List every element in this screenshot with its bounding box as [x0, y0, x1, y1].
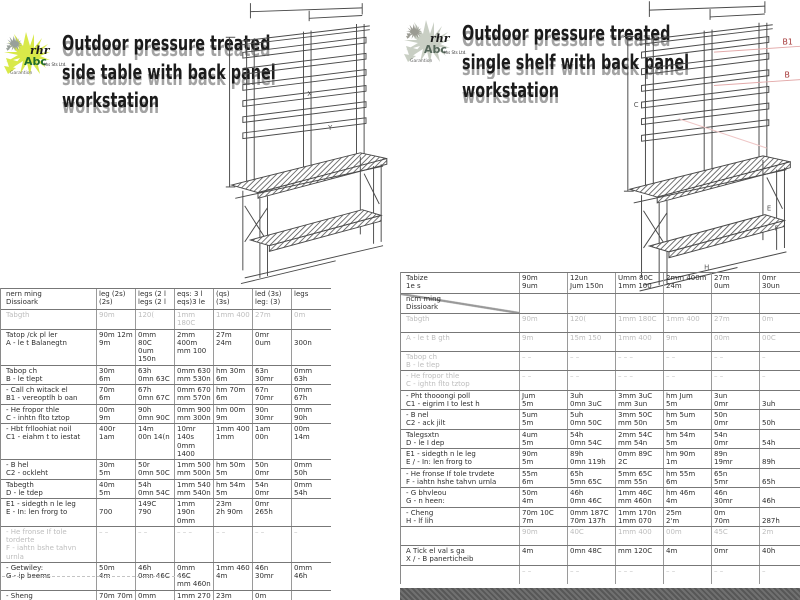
table-row: Tabop ch B - le tlept30m 6m63h 0mn 63C0m… — [1, 365, 331, 385]
dim-label: C — [634, 101, 639, 109]
table-cell: – – — [567, 371, 615, 390]
table-row: Talegsxtn D - le I dep4um 5m54h 0mn 54C2… — [401, 429, 800, 449]
table-cell: 2m — [759, 527, 800, 545]
table-cell: 65h 5mn 65C — [567, 469, 615, 488]
table-cell: 1mm 170n 1mm 070 — [615, 508, 663, 527]
table-cell: 14m 00n 14(n — [135, 424, 174, 459]
title-line: workstation — [462, 76, 620, 104]
table-cell: 54n 0mr — [252, 480, 291, 499]
table-cell: 23m 2'm 70m — [213, 591, 252, 600]
table-cell: 46h 0mn 46C — [567, 488, 615, 507]
table-cell: 0mm 80C 0um 150n — [135, 330, 174, 365]
table-cell: - B nel C2 - ack jilt — [401, 410, 519, 429]
table-cell: Tabgth — [1, 310, 96, 329]
table-cell: 90m — [519, 527, 567, 545]
table-cell: 4m — [519, 546, 567, 565]
table-cell: – – — [663, 352, 711, 371]
table-cell: hm 54m 5m — [213, 480, 252, 499]
table-row: E1 - sidegth n le leg E / - In: len fror… — [401, 448, 800, 468]
table-cell: – — [759, 371, 800, 390]
table-cell: 1mm 460 4m — [213, 563, 252, 590]
table-cell: 700 — [96, 499, 135, 526]
table-row: Tatop /ck pl ler A - le t Balanegtn90m 1… — [1, 329, 331, 365]
dim-label: F — [775, 224, 779, 232]
table-cell: 3mm 50C mm 50n — [615, 410, 663, 429]
table-cell: 63h 0mn 63C — [135, 366, 174, 385]
table-row: A - le t B gth9m15m 1501mm 4009m00m00C — [401, 332, 800, 351]
table-cell: 40h — [759, 546, 800, 565]
table-cell: 1mm 400 1mm — [213, 424, 252, 459]
table-row: nern ming Dissioarkleg (2s) (2s)legs (2 … — [1, 288, 331, 309]
table-cell: 65n 5mr — [711, 469, 759, 488]
table-cell: 00m 9m — [96, 405, 135, 424]
table-row: 90m40C1mm 40000m45C2m — [401, 526, 800, 545]
table-cell: 30m 6m — [96, 366, 135, 385]
page-right: rhr Abc ths Sts Ltd. Garantion Outdoor p… — [400, 0, 800, 600]
table-cell: ncm ming Dissioark — [401, 294, 519, 313]
table-cell: 50n 0mr — [711, 410, 759, 429]
brand-tagline: Garantion — [10, 71, 32, 76]
table-cell: 0mm 46h — [291, 563, 330, 590]
page-left: rhr Abc ths Sts Ltd. Garantion Outdoor p… — [0, 0, 400, 600]
table-cell: 70m 70m 7m — [96, 591, 135, 600]
table-cell: 67n 70mr — [252, 385, 291, 404]
table-row: - Call ch witack el B1 - vereoptlh b oan… — [1, 384, 331, 404]
table-cell: – – — [711, 371, 759, 390]
table-cell: 10mr 140s 0mm 1400 — [174, 424, 213, 459]
table-cell: 90m 9um — [519, 273, 567, 293]
table-cell: Tabize 1e s — [401, 273, 519, 293]
table-cell: 25m 2'm — [663, 508, 711, 527]
table-row: - Cheng H - lf lih70m 10C 7m0mm 187C 70m… — [401, 507, 800, 527]
table-row: - He fropor thle C - inhtn flto tztop00m… — [1, 404, 331, 424]
table-cell: 3uh — [759, 391, 800, 410]
table-cell: 2mm 54C mm 54n — [615, 430, 663, 449]
table-cell: 30m 5m — [96, 460, 135, 479]
table-cell: – – – — [615, 566, 663, 584]
table-cell: 0mm 670 mm 570n — [174, 385, 213, 404]
table-cell: 1mm 46C mm 460n — [615, 488, 663, 507]
table-cell: 4um 5m — [519, 430, 567, 449]
table-cell: – – — [135, 527, 174, 562]
title-line: Outdoor pressure treated — [462, 19, 620, 47]
table-cell: 120( — [135, 310, 174, 329]
table-cell: nern ming Dissioark — [1, 289, 96, 309]
table-row: - He fronse If tole trvdete F - iahtn hs… — [401, 468, 800, 488]
table-cell: 45C — [711, 527, 759, 545]
table-cell: Umm 80C 1mm 100 — [615, 273, 663, 293]
table-cell: E1 - sidegth n le leg E / - In: len fror… — [401, 449, 519, 468]
table-cell: 120( — [567, 314, 615, 332]
table-row: - He fropor thle C - ightn flto tztop– –… — [401, 370, 800, 390]
table-cell: E1 - sidegth n le leg E - In: len frorg … — [1, 499, 96, 526]
brand-tagline: Garantion — [410, 59, 432, 64]
table-cell — [711, 294, 759, 313]
table-cell: 0mm 630 mm 530n — [174, 366, 213, 385]
table-cell: 1mm 400 — [663, 314, 711, 332]
table-cell: - He fronse If tole torderte F - iahtn b… — [1, 527, 96, 562]
table-cell: 46n 30mr — [252, 563, 291, 590]
table-cell: 9m — [663, 333, 711, 351]
table-cell: 50r 0mn 50C — [135, 460, 174, 479]
table-cell — [663, 294, 711, 313]
table-cell: Jum 5m — [519, 391, 567, 410]
title-line: workstation — [62, 86, 220, 114]
table-row: Tabgth90m120(1mm 180C1mm 40027m0m — [1, 309, 331, 329]
table-cell: – – — [519, 566, 567, 584]
table-cell: 90h 0mn 90C — [135, 405, 174, 424]
table-cell: 0mr 265h — [252, 499, 291, 526]
table-cell: – — [291, 527, 330, 562]
table-cell: 0mm 87C 0m 137h — [135, 591, 174, 600]
table-cell: 12un Jum 150n — [567, 273, 615, 293]
dim-label: E — [767, 205, 771, 213]
table-cell: - He fropor thle C - ightn flto tztop — [401, 371, 519, 390]
table-cell: 46h — [759, 488, 800, 507]
table-cell: 0mm 90h — [291, 405, 330, 424]
table-row: - Sheng H - eil iun70m 70m 7m0mm 87C 0m … — [1, 590, 331, 600]
table-cell: 50h — [759, 410, 800, 429]
table-cell: – – — [519, 371, 567, 390]
table-cell: 70m 6m — [96, 385, 135, 404]
table-cell: - Pht thooongi poll C1 - eigrim I to les… — [401, 391, 519, 410]
bench-drawing: B1 B C E F H — [620, 0, 800, 306]
table-cell: A - le t B gth — [401, 333, 519, 351]
table-cell: 0mm 50h — [291, 460, 330, 479]
table-cell: – – — [663, 371, 711, 390]
table-cell: 0mr 0um — [252, 330, 291, 365]
table-row: A Tick el val s ga X / - B panerticheib4… — [401, 545, 800, 565]
table-cell: 1mm 400 — [615, 333, 663, 351]
table-cell: – – – — [174, 527, 213, 562]
table-cell: 0mr 30un — [759, 273, 800, 293]
table-cell: 1am 00n — [252, 424, 291, 459]
table-cell: – — [759, 352, 800, 371]
table-cell: 50m 4m — [519, 488, 567, 507]
table-cell: 54h — [759, 430, 800, 449]
table-cell: 9m — [519, 333, 567, 351]
table-cell: 3uh 0mn 3uC — [567, 391, 615, 410]
table-bottom-rule — [2, 576, 190, 577]
table-cell: – – — [711, 352, 759, 371]
table-row: - Pht thooongi poll C1 - eigrim I to les… — [401, 390, 800, 410]
table-cell: 00m — [711, 333, 759, 351]
table-cell: 3un 0mr — [711, 391, 759, 410]
table-cell: 90m 12m 9m — [96, 330, 135, 365]
table-cell: 27m — [252, 310, 291, 329]
dimensions-table: nern ming Dissioarkleg (2s) (2s)legs (2 … — [0, 288, 331, 600]
table-cell: hm 90m 1m — [663, 449, 711, 468]
table-cell: 5uh 0mn 50C — [567, 410, 615, 429]
title-line: single shelf with back panel — [462, 48, 620, 76]
table-cell — [519, 294, 567, 313]
table-row: Tabegth D - le tdep40m 5m54h 0mn 54C1mm … — [1, 479, 331, 499]
table-cell: - Hbt frlloohiat noil C1 - eiahm t to ie… — [1, 424, 96, 459]
table-cell — [291, 591, 330, 600]
table-cell: 40m 5m — [96, 480, 135, 499]
table-cell: (qs) (3s) — [213, 289, 252, 309]
table-cell: 1mm 180C — [615, 314, 663, 332]
table-cell: – – — [711, 566, 759, 584]
table-cell: – – – — [615, 371, 663, 390]
table-cell: 00m — [663, 527, 711, 545]
table-cell: hm 00m 9m — [213, 405, 252, 424]
table-cell: – – — [252, 527, 291, 562]
table-cell: 15m 150 — [567, 333, 615, 351]
title-line: Outdoor pressure treated — [62, 29, 220, 57]
table-cell: - G bhvleou G - n heen: — [401, 488, 519, 507]
table-cell: 27m — [711, 314, 759, 332]
table-row: ncm ming Dissioark — [401, 293, 800, 313]
table-row: Tabgth90m120(1mm 180C1mm 40027m0m — [401, 313, 800, 332]
table-cell: 46n 30mr — [711, 488, 759, 507]
table-cell: – – — [519, 352, 567, 371]
table-cell: - B hel C2 - ockleht — [1, 460, 96, 479]
table-cell: 54h 0mn 54C — [135, 480, 174, 499]
table-cell: 0m — [759, 314, 800, 332]
table-cell — [401, 527, 519, 545]
table-cell: 27m 24m — [213, 330, 252, 365]
table-cell: legs (2 l legs (2 l — [135, 289, 174, 309]
table-cell: 0mm 54h — [291, 480, 330, 499]
table-cell: 40C — [567, 527, 615, 545]
table-cell: 1mm 500 mm 500n — [174, 460, 213, 479]
table-cell: 89h 0mn 119h — [567, 449, 615, 468]
table-cell: – – — [567, 352, 615, 371]
table-cell: mm 120C — [615, 546, 663, 565]
table-cell: 54h 0mn 54C — [567, 430, 615, 449]
table-cell: 0m — [291, 310, 330, 329]
table-cell: 00C — [759, 333, 800, 351]
table-cell: – – — [213, 527, 252, 562]
table-cell: Tabgth — [401, 314, 519, 332]
table-row: - B hel C2 - ockleht30m 5m50r 0mn 50C1mm… — [1, 459, 331, 479]
table-cell: 0mm 900 mm 300n — [174, 405, 213, 424]
dim-label: X — [307, 90, 312, 98]
table-cell: 0mr — [711, 546, 759, 565]
table-cell: - Sheng H - eil iun — [1, 591, 96, 600]
table-cell: 55m 6m — [519, 469, 567, 488]
table-cell: 5um 5m — [519, 410, 567, 429]
table-cell: legs — [291, 289, 330, 309]
dim-label-b: B — [784, 71, 789, 80]
table-cell: 27m 0um — [711, 273, 759, 293]
table-cell: A Tick el val s ga X / - B panerticheib — [401, 546, 519, 565]
table-cell — [615, 294, 663, 313]
table-cell: hm 30m 6m — [213, 366, 252, 385]
table-cell: 149C 790 — [135, 499, 174, 526]
table-cell: - He fropor thle C - inhtn flto tztop — [1, 405, 96, 424]
table-cell: – – — [96, 527, 135, 562]
table-row: E1 - sidegth n le leg E - In: len frorg … — [1, 498, 331, 526]
table-cell: 300n — [291, 330, 330, 365]
table-cell: 23m 2h 90m — [213, 499, 252, 526]
table-row: - He fronse If tole torderte F - iahtn b… — [1, 526, 331, 562]
table-cell: 00m 14m — [291, 424, 330, 459]
table-cell: – – — [663, 566, 711, 584]
table-row: Tabize 1e s90m 9um12un Jum 150nUmm 80C 1… — [401, 272, 800, 293]
table-cell: 287h — [759, 508, 800, 527]
table-row: - B nel C2 - ack jilt5um 5m5uh 0mn 50C3m… — [401, 409, 800, 429]
table-cell: hm 54m 5m — [663, 430, 711, 449]
table-cell: 54n 0mr — [711, 430, 759, 449]
table-cell: 67h 0mn 67C — [135, 385, 174, 404]
table-cell: 0m 70m — [711, 508, 759, 527]
table-cell — [291, 499, 330, 526]
table-cell: 5mm 65C mm 55n — [615, 469, 663, 488]
table-cell: – – – — [615, 352, 663, 371]
table-cell — [759, 294, 800, 313]
table-cell: hm 70m 6m — [213, 385, 252, 404]
table-cell: 400r 1am — [96, 424, 135, 459]
bottom-dark-strip — [400, 588, 800, 600]
table-cell: hm 46m 4m — [663, 488, 711, 507]
table-cell: hm 5um 5m — [663, 410, 711, 429]
table-cell: 1mm 180C — [174, 310, 213, 329]
table-cell — [401, 566, 519, 584]
table-cell: 90m 5m — [519, 449, 567, 468]
table-row: - Hbt frlloohiat noil C1 - eiahm t to ie… — [1, 423, 331, 459]
table-cell: Tatop /ck pl ler A - le t Balanegtn — [1, 330, 96, 365]
table-cell: - Cheng H - lf lih — [401, 508, 519, 527]
table-cell: 65h — [759, 469, 800, 488]
table-cell: Tabegth D - le tdep — [1, 480, 96, 499]
table-row: - G bhvleou G - n heen:50m 4m46h 0mn 46C… — [401, 487, 800, 507]
table-cell: Tabop ch B - le tlep — [401, 352, 519, 371]
table-cell: 1mm 400 — [213, 310, 252, 329]
dim-label: H — [704, 263, 709, 271]
table-cell: 1mm 400 — [615, 527, 663, 545]
table-cell: Tabop ch B - le tlept — [1, 366, 96, 385]
dim-label-b1: B1 — [783, 37, 793, 46]
table-cell: 0mm 187C 70m 137h — [567, 508, 615, 527]
table-cell: - He fronse If tole trvdete F - iahtn hs… — [401, 469, 519, 488]
table-cell — [567, 294, 615, 313]
table-cell: hm 55m 6m — [663, 469, 711, 488]
table-cell: eqs: 3 l eqs)3 le — [174, 289, 213, 309]
table-cell: 63n 30mr — [252, 366, 291, 385]
table-row: Tabop ch B - le tlep– –– –– – –– –– –– — [401, 351, 800, 371]
table-cell: 1mm 190n 0mm — [174, 499, 213, 526]
table-cell: 89n 19mr — [711, 449, 759, 468]
table-cell: 89h — [759, 449, 800, 468]
table-row: – –– –– – –– –– –– — [401, 565, 800, 584]
table-cell: Talegsxtn D - le I dep — [401, 430, 519, 449]
bench-drawing: X Y — [222, 0, 400, 300]
table-cell: 1mm 540 mm 540n — [174, 480, 213, 499]
table-cell: 50n 0mr — [252, 460, 291, 479]
table-cell: 70m 10C 7m — [519, 508, 567, 527]
table-cell: 1mm 270 mm 870n — [174, 591, 213, 600]
table-cell: led (3s) leg: (3) — [252, 289, 291, 309]
table-cell: 0mn 48C — [567, 546, 615, 565]
table-cell: 2mm 400m 24m — [663, 273, 711, 293]
table-cell: 90n 30mr — [252, 405, 291, 424]
table-cell: hm Jum 5m — [663, 391, 711, 410]
table-cell: 0mm 63h — [291, 366, 330, 385]
table-cell: 4m — [663, 546, 711, 565]
table-cell: – – — [567, 566, 615, 584]
table-cell: leg (2s) (2s) — [96, 289, 135, 309]
table-cell: 0m 28h — [252, 591, 291, 600]
table-cell: – — [759, 566, 800, 584]
table-cell: - Call ch witack el B1 - vereoptlh b oan — [1, 385, 96, 404]
table-cell: 90m — [96, 310, 135, 329]
title-line: side table with back panel — [62, 58, 220, 86]
table-cell: 0mm 67h — [291, 385, 330, 404]
table-cell: 2mm 400m mm 100 — [174, 330, 213, 365]
table-cell: 3mm 3uC mm 3un — [615, 391, 663, 410]
dimensions-table: Tabize 1e s90m 9um12un Jum 150nUmm 80C 1… — [400, 272, 800, 584]
table-cell: 90m — [519, 314, 567, 332]
table-cell: hm 50m 5m — [213, 460, 252, 479]
table-cell: 0mm 89C 2C — [615, 449, 663, 468]
